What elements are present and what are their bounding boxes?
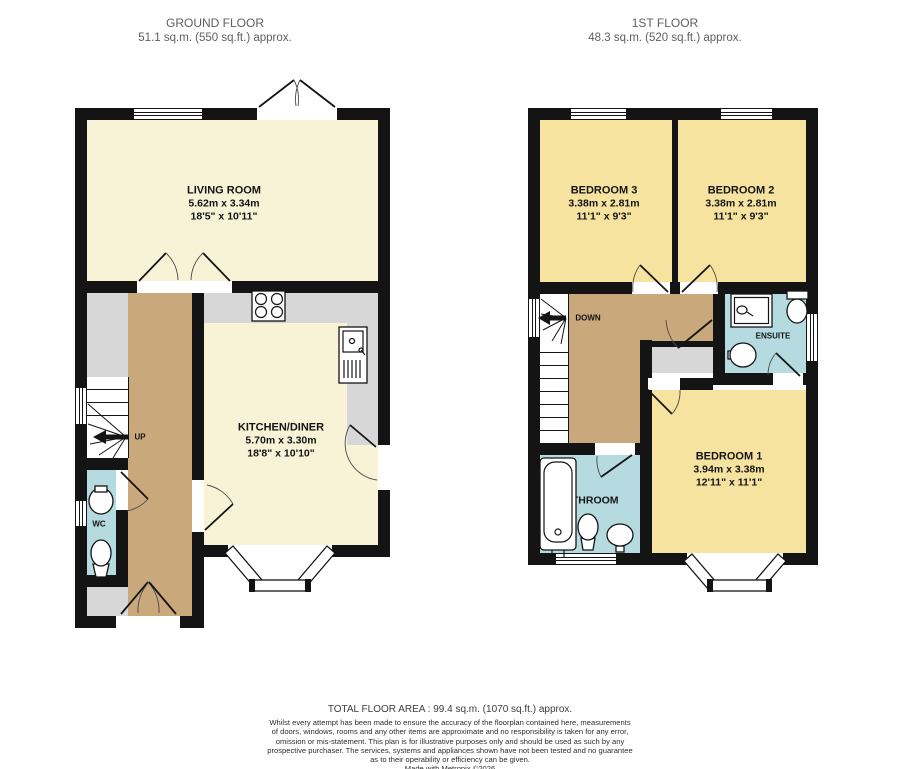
bedroom3-door [633,265,668,292]
kitchen-side-door [345,425,377,480]
sink-icon [339,327,367,383]
ensuite-door [768,353,800,376]
disclaimer-line: Whilst every attempt has been made to en… [0,718,900,727]
stairs-up-winders [88,377,129,458]
down-arrow [538,311,566,325]
bedroom2-door [682,265,717,292]
french-doors [259,80,335,107]
toilet-icon [91,540,111,577]
basin-icon [89,486,113,514]
kitchen-door [205,485,233,530]
bedroom1-door [647,389,680,414]
total-floor-area: TOTAL FLOOR AREA : 99.4 sq.m. (1070 sq.f… [0,703,900,716]
disclaimer-line: omission or mis-statement. This plan is … [0,737,900,746]
living-room-double-door [139,253,230,281]
basin-icon [607,524,633,552]
disclaimer-line: of doors, windows, rooms and any other i… [0,727,900,736]
toilet-icon [787,291,808,323]
front-door [121,582,176,614]
disclaimer-line: as to their operability or efficiency ca… [0,755,900,764]
shower-icon [731,294,772,327]
bathtub-icon [540,458,576,557]
linework-overlay [0,0,900,769]
metropix-credit: Made with Metropix ©2026 [0,764,900,769]
toilet-icon [578,514,598,550]
basin-icon [728,343,756,367]
cupboard-door [666,320,712,348]
wc-door [121,472,148,511]
bay-window [225,546,335,592]
footer: TOTAL FLOOR AREA : 99.4 sq.m. (1070 sq.f… [0,703,900,769]
floorplan-page: GROUND FLOOR 51.1 sq.m. (550 sq.ft.) app… [0,0,900,769]
hob-icon [252,291,285,321]
disclaimer-line: prospective purchaser. The services, sys… [0,746,900,755]
bay-window [684,554,786,592]
bathroom-door [597,455,632,477]
